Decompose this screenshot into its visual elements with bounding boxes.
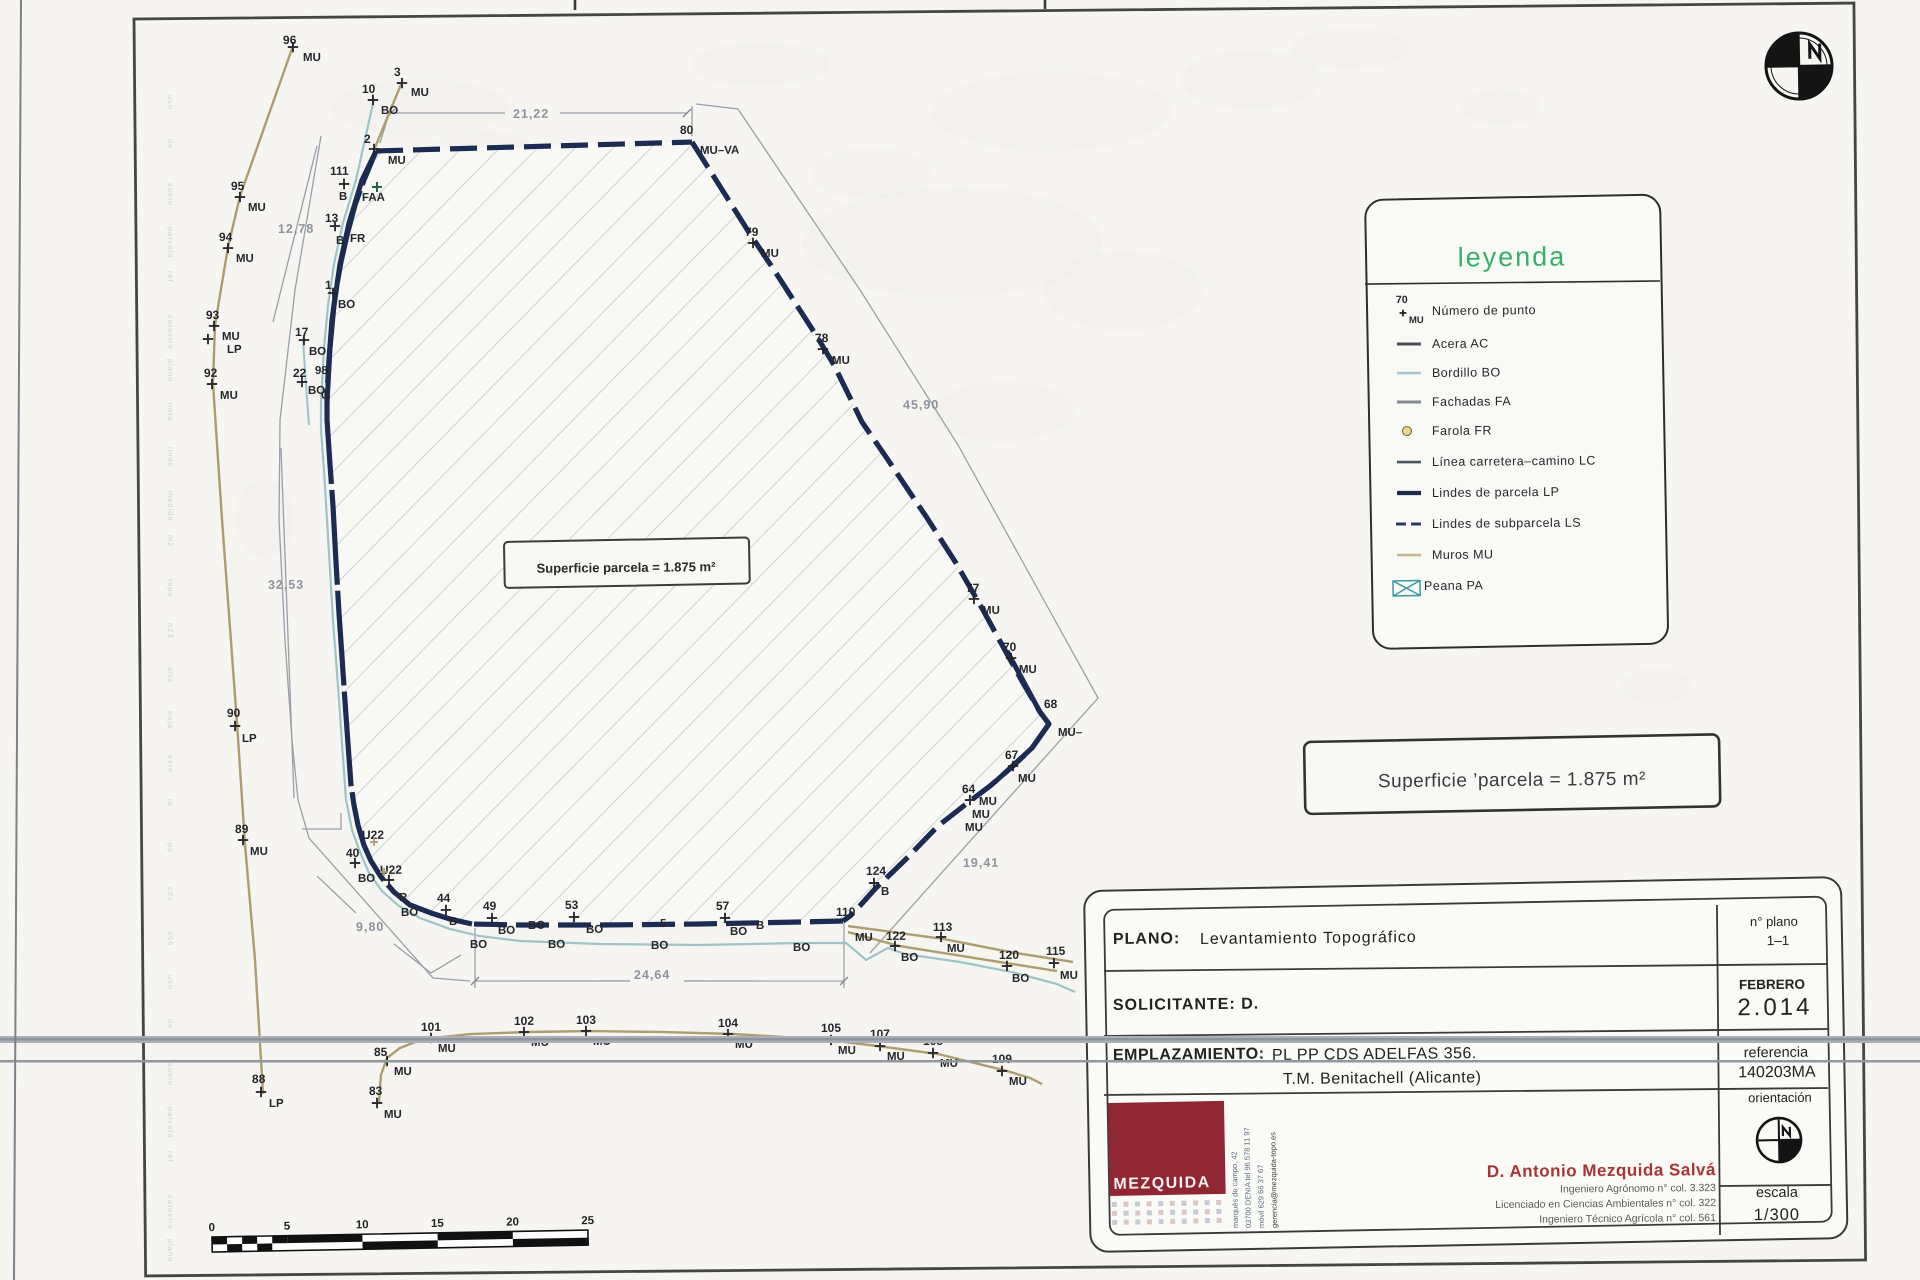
svg-text:MU: MU [761, 248, 779, 260]
svg-text:MU: MU [855, 932, 873, 944]
svg-text:Peana PA: Peana PA [1424, 578, 1484, 593]
svg-text:49: 49 [483, 899, 497, 913]
svg-text:105: 105 [821, 1021, 841, 1035]
svg-text:T.M. Benitachell (Alicante): T.M. Benitachell (Alicante) [1283, 1069, 1482, 1088]
svg-text:MU: MU [838, 1045, 856, 1057]
svg-text:32,53: 32,53 [268, 578, 304, 592]
svg-text:móvil 629 66 37 67: móvil 629 66 37 67 [1256, 1165, 1266, 1229]
svg-text:90: 90 [227, 706, 241, 720]
svg-text:BO: BO [309, 346, 326, 358]
svg-text:marqués de campo, 42: marqués de campo, 42 [1230, 1151, 1240, 1228]
svg-text:BO: BO [586, 924, 603, 936]
svg-text:BO: BO [793, 942, 810, 954]
svg-text:104: 104 [718, 1016, 738, 1030]
svg-text:B: B [336, 235, 344, 247]
svg-text:Fachadas FA: Fachadas FA [1432, 394, 1511, 409]
svg-text:MU: MU [1409, 315, 1424, 326]
svg-text:10: 10 [356, 1219, 369, 1231]
svg-text:MU: MU [411, 87, 429, 99]
svg-text:BO: BO [1012, 973, 1029, 985]
svg-text:95: 95 [231, 179, 245, 193]
svg-text:BO: BO [651, 940, 668, 952]
svg-text:120: 120 [999, 948, 1019, 962]
svg-text:nota: nota [166, 403, 175, 422]
svg-text:Número de punto: Número de punto [1432, 303, 1536, 318]
svg-text:LP: LP [242, 733, 257, 745]
svg-text:Acera AC: Acera AC [1432, 336, 1489, 351]
svg-text:B: B [881, 886, 889, 898]
svg-text:Licenciado en Ciencias Ambi: Licenciado en Ciencias Ambientales n° co… [1495, 1197, 1716, 1211]
svg-text:101: 101 [421, 1020, 441, 1034]
svg-text:77: 77 [966, 581, 980, 595]
svg-text:25: 25 [581, 1215, 595, 1227]
svg-text:45,90: 45,90 [903, 398, 939, 412]
svg-text:MU: MU [979, 796, 997, 808]
svg-text:2.014: 2.014 [1737, 994, 1812, 1022]
svg-text:70: 70 [1396, 294, 1408, 306]
svg-text:MU: MU [250, 846, 268, 858]
svg-text:88: 88 [252, 1072, 266, 1086]
svg-text:este: este [166, 755, 175, 773]
svg-text:10: 10 [362, 82, 376, 96]
svg-text:leyenda: leyenda [1458, 241, 1567, 272]
svg-text:Ingeniero Técnico Agrícola: Ingeniero Técnico Agrícola n° col. 561 [1539, 1212, 1716, 1226]
svg-text:m2: m2 [166, 535, 175, 548]
svg-text:1: 1 [325, 278, 332, 292]
svg-text:40: 40 [346, 846, 360, 860]
svg-text:BO: BO [401, 907, 418, 919]
svg-text:BO: BO [470, 939, 487, 951]
svg-text:MU: MU [303, 52, 321, 64]
svg-text:topo: topo [166, 579, 175, 598]
svg-text:57: 57 [716, 899, 730, 913]
svg-text:pp: pp [166, 843, 175, 853]
svg-text:MU: MU [982, 605, 1000, 617]
svg-text:MU–VA: MU–VA [700, 145, 740, 157]
svg-text:LP: LP [269, 1098, 284, 1110]
svg-text:Farola FR: Farola FR [1432, 423, 1492, 438]
svg-text:70: 70 [1003, 640, 1017, 654]
svg-text:MU: MU [947, 943, 965, 955]
svg-text:5: 5 [284, 1221, 291, 1233]
svg-text:0: 0 [208, 1222, 215, 1234]
svg-text:17: 17 [295, 325, 309, 339]
svg-text:escala: escala [1756, 1185, 1799, 1201]
svg-text:79: 79 [745, 225, 759, 239]
svg-text:83: 83 [369, 1084, 383, 1098]
svg-text:98: 98 [315, 365, 329, 377]
svg-text:R: R [399, 892, 408, 904]
svg-text:13: 13 [325, 211, 339, 225]
svg-text:suelo: suelo [166, 183, 175, 206]
svg-text:parcela: parcela [166, 227, 175, 259]
svg-text:9,80: 9,80 [356, 920, 384, 934]
svg-text:MU: MU [1060, 970, 1078, 982]
svg-text:FEBRERO: FEBRERO [1739, 977, 1805, 993]
svg-text:92: 92 [204, 366, 218, 380]
svg-text:linde: linde [166, 447, 175, 468]
svg-text:111: 111 [330, 164, 349, 178]
svg-text:catastro: catastro [166, 1195, 175, 1230]
svg-text:85: 85 [374, 1045, 388, 1059]
svg-text:SOLICITANTE: D.: SOLICITANTE: D. [1113, 996, 1259, 1014]
svg-text:113: 113 [933, 920, 953, 934]
svg-text:B: B [756, 920, 764, 932]
svg-text:MU: MU [1009, 1076, 1027, 1088]
svg-text:102: 102 [514, 1014, 534, 1028]
svg-text:BO: BO [338, 299, 355, 311]
svg-text:de: de [166, 1019, 175, 1029]
svg-text:BO: BO [901, 952, 918, 964]
svg-text:MU: MU [940, 1058, 958, 1070]
svg-text:MU: MU [394, 1066, 412, 1078]
svg-text:MU: MU [832, 355, 850, 367]
svg-text:MU: MU [220, 390, 238, 402]
svg-text:124: 124 [866, 864, 886, 878]
svg-text:93: 93 [206, 308, 220, 322]
svg-text:D. Antonio Mezquida Salvá: D. Antonio Mezquida Salvá [1487, 1160, 1716, 1181]
svg-text:24,64: 24,64 [634, 968, 670, 982]
svg-text:n° plano: n° plano [1750, 914, 1798, 929]
svg-text:356: 356 [166, 931, 175, 947]
svg-text:uso: uso [166, 975, 175, 990]
svg-text:plano: plano [166, 1239, 175, 1262]
svg-text:89: 89 [235, 822, 249, 836]
svg-text:MU: MU [1018, 773, 1036, 785]
svg-text:baja: baja [166, 711, 175, 729]
svg-text:MU: MU [965, 822, 983, 834]
svg-text:53: 53 [565, 898, 579, 912]
svg-text:19,41: 19,41 [963, 856, 999, 870]
svg-text:Lindes de parcela LP: Lindes de parcela LP [1432, 485, 1560, 500]
svg-text:MU: MU [972, 809, 990, 821]
svg-text:B: B [339, 191, 347, 203]
svg-text:Superficie ’parcela = 1.875: Superficie ’parcela = 1.875 m² [1378, 769, 1646, 792]
svg-text:96: 96 [283, 33, 297, 47]
svg-text:Bordillo BO: Bordillo BO [1432, 365, 1501, 380]
svg-text:Levantamiento Topográfico: Levantamiento Topográfico [1200, 929, 1417, 948]
svg-text:suelo: suelo [166, 1063, 175, 1086]
svg-text:medida: medida [166, 491, 175, 522]
svg-text:Ingeniero Agrónomo n° col.: Ingeniero Agrónomo n° col. 3.323 [1560, 1182, 1716, 1195]
svg-text:alta: alta [166, 667, 175, 683]
svg-text:Superficie parcela = 1.875: Superficie parcela = 1.875 m² [536, 559, 716, 576]
svg-text:ref: ref [166, 1151, 175, 1163]
svg-text:15: 15 [431, 1218, 445, 1230]
svg-text:plano: plano [166, 359, 175, 382]
svg-text:3: 3 [394, 65, 401, 79]
svg-text:C: C [321, 390, 329, 402]
svg-text:LP: LP [227, 344, 242, 356]
svg-text:BO: BO [381, 105, 398, 117]
svg-text:referencia: referencia [1744, 1045, 1810, 1062]
svg-text:orientación: orientación [1748, 1090, 1812, 1106]
svg-text:78: 78 [815, 331, 829, 345]
svg-text:103: 103 [576, 1013, 596, 1027]
svg-text:67: 67 [1005, 748, 1019, 762]
svg-text:id: id [166, 799, 175, 807]
svg-text:109: 109 [992, 1052, 1012, 1066]
svg-text:uso: uso [166, 95, 175, 110]
svg-text:MU: MU [1019, 664, 1037, 676]
svg-text:115: 115 [1046, 944, 1066, 958]
svg-text:64: 64 [962, 782, 976, 796]
svg-text:PLANO:: PLANO: [1113, 930, 1180, 948]
svg-text:12,78: 12,78 [278, 222, 314, 236]
svg-text:FAA: FAA [362, 192, 385, 204]
svg-text:44: 44 [437, 891, 451, 905]
svg-text:MU–: MU– [1058, 727, 1083, 739]
svg-text:FR: FR [350, 233, 366, 245]
svg-text:Línea carretera–camino LC: Línea carretera–camino LC [1432, 453, 1596, 469]
svg-text:94: 94 [219, 230, 233, 244]
svg-text:ref: ref [166, 271, 175, 283]
svg-text:BO: BO [528, 920, 545, 932]
svg-text:MU: MU [384, 1109, 402, 1121]
svg-text:gerencia@mezquida-topo.es: gerencia@mezquida-topo.es [1268, 1132, 1279, 1228]
svg-text:20: 20 [506, 1216, 519, 1228]
svg-text:03700 DENIA tel 96 578 11 97: 03700 DENIA tel 96 578 11 97 [1242, 1127, 1253, 1228]
svg-text:80: 80 [680, 123, 694, 137]
svg-text:MU: MU [248, 202, 266, 214]
svg-text:catastro: catastro [166, 315, 175, 350]
svg-text:68: 68 [1044, 697, 1058, 711]
svg-text:BO: BO [358, 873, 375, 885]
svg-text:22: 22 [293, 366, 307, 380]
svg-text:n23: n23 [166, 623, 175, 639]
svg-text:21,22: 21,22 [513, 107, 549, 121]
svg-text:de: de [166, 139, 175, 149]
svg-text:5: 5 [660, 918, 667, 930]
svg-text:2: 2 [364, 132, 371, 146]
svg-text:parcela: parcela [166, 1107, 175, 1139]
svg-text:122: 122 [886, 929, 906, 943]
svg-text:MEZQUIDA: MEZQUIDA [1113, 1174, 1211, 1193]
svg-text:MU: MU [388, 155, 406, 167]
svg-text:BO: BO [548, 939, 565, 951]
svg-text:B: B [449, 916, 457, 928]
svg-text:1/300: 1/300 [1754, 1206, 1800, 1224]
svg-text:110: 110 [836, 905, 856, 919]
svg-text:MU: MU [236, 253, 254, 265]
svg-text:BO: BO [730, 926, 747, 938]
svg-text:MU: MU [438, 1043, 456, 1055]
svg-text:1–1: 1–1 [1767, 933, 1790, 948]
svg-text:Lindes de subparcela LS: Lindes de subparcela LS [1432, 516, 1581, 531]
svg-text:cds: cds [166, 887, 175, 902]
svg-text:Muros MU: Muros MU [1432, 547, 1494, 562]
svg-text:BO: BO [498, 925, 515, 937]
svg-text:MU: MU [222, 331, 240, 343]
svg-text:140203MA: 140203MA [1738, 1064, 1816, 1082]
